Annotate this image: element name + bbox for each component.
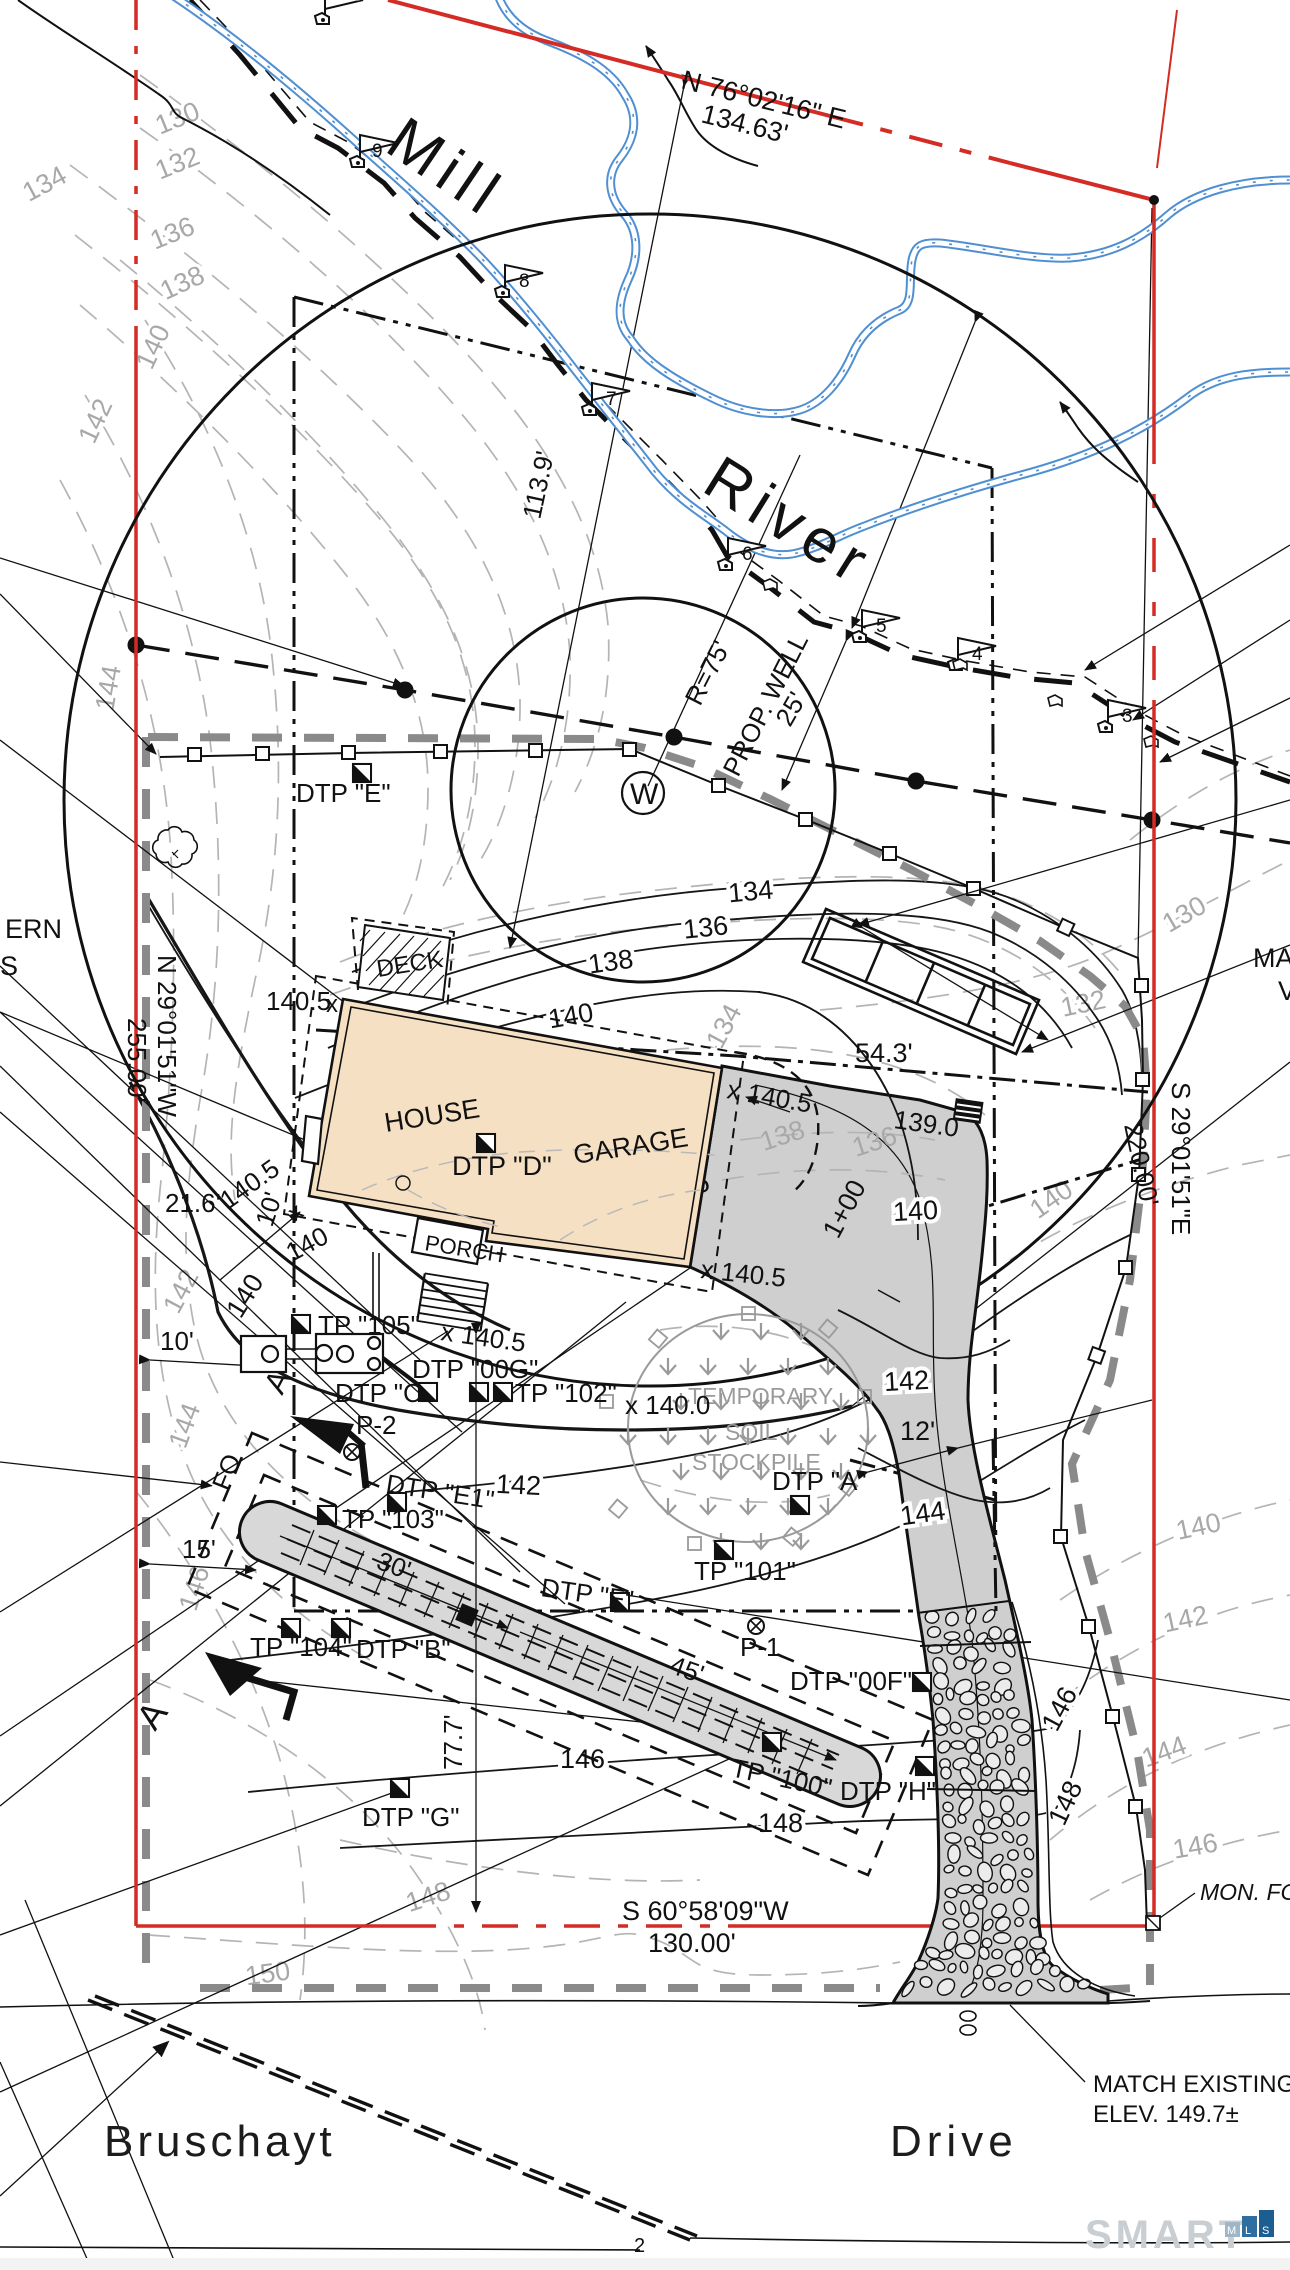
svg-text:MON. FOUND: MON. FOUND — [1200, 1879, 1290, 1905]
svg-text:SMART: SMART — [1085, 2213, 1247, 2257]
svg-text:S: S — [1262, 2225, 1269, 2237]
svg-text:142: 142 — [495, 1469, 542, 1501]
svg-text:DTP "B": DTP "B" — [356, 1634, 451, 1664]
svg-text:DTP "D": DTP "D" — [452, 1151, 552, 1181]
svg-text:140.5: 140.5 — [266, 986, 331, 1016]
svg-text:142: 142 — [883, 1365, 930, 1397]
svg-text:Drive: Drive — [890, 2117, 1018, 2166]
svg-text:9: 9 — [372, 141, 383, 162]
svg-text:V: V — [1278, 976, 1290, 1006]
svg-text:W: W — [630, 778, 659, 811]
svg-text:DTP "E": DTP "E" — [296, 778, 391, 808]
svg-text:DTP "G": DTP "G" — [362, 1802, 459, 1832]
svg-text:ELEV. 149.7±: ELEV. 149.7± — [1093, 2101, 1239, 2128]
svg-text:6: 6 — [742, 544, 753, 565]
svg-text:15': 15' — [182, 1534, 216, 1564]
svg-text:DTP "H": DTP "H" — [840, 1776, 936, 1806]
svg-text:TP "102": TP "102" — [515, 1378, 617, 1408]
svg-text:x: x — [326, 991, 338, 1018]
svg-text:5: 5 — [876, 616, 887, 637]
svg-text:S 60°58'09"W: S 60°58'09"W — [622, 1896, 789, 1926]
svg-text:MATCH EXISTING RO: MATCH EXISTING RO — [1093, 2071, 1290, 2098]
svg-text:77.7': 77.7' — [438, 1714, 468, 1770]
svg-text:54.3': 54.3' — [855, 1038, 913, 1068]
svg-text:DTP "C": DTP "C" — [335, 1378, 431, 1408]
svg-text:3: 3 — [1122, 706, 1133, 727]
svg-text:DTP "A": DTP "A" — [772, 1466, 867, 1496]
svg-text:TP "105": TP "105" — [318, 1310, 420, 1340]
svg-text:130.00': 130.00' — [648, 1928, 736, 1958]
svg-text:10': 10' — [160, 1326, 194, 1356]
svg-text:TP "101": TP "101" — [694, 1556, 796, 1586]
svg-text:ERN: ERN — [5, 914, 62, 944]
svg-text:2: 2 — [634, 2235, 645, 2257]
svg-text:L: L — [1245, 2225, 1251, 2237]
svg-text:12': 12' — [900, 1416, 935, 1446]
svg-text:P-1: P-1 — [740, 1632, 780, 1662]
svg-text:MAR: MAR — [1253, 943, 1290, 973]
svg-text:M: M — [1227, 2225, 1236, 2237]
svg-text:P-2: P-2 — [356, 1410, 396, 1440]
svg-text:7: 7 — [606, 389, 617, 410]
svg-text:Bruschayt: Bruschayt — [104, 2117, 336, 2166]
svg-text:8: 8 — [519, 271, 530, 292]
svg-text:21.6': 21.6' — [165, 1188, 221, 1218]
svg-text:4: 4 — [972, 644, 983, 665]
svg-text:TP "104": TP "104" — [250, 1632, 352, 1662]
svg-text:134: 134 — [727, 874, 775, 908]
svg-text:x 140.0: x 140.0 — [625, 1390, 710, 1420]
svg-text:S: S — [0, 951, 18, 981]
svg-text:140: 140 — [892, 1195, 939, 1227]
svg-text:S 29°01'51"E: S 29°01'51"E — [1166, 1082, 1196, 1235]
svg-text:DTP "00F": DTP "00F" — [790, 1666, 912, 1696]
svg-text:136: 136 — [682, 910, 730, 945]
svg-text:SOIL: SOIL — [725, 1419, 778, 1445]
svg-text:N 29°01'51"W: N 29°01'51"W — [152, 955, 182, 1117]
svg-text:144: 144 — [898, 1495, 947, 1531]
svg-text:148: 148 — [758, 1808, 803, 1838]
